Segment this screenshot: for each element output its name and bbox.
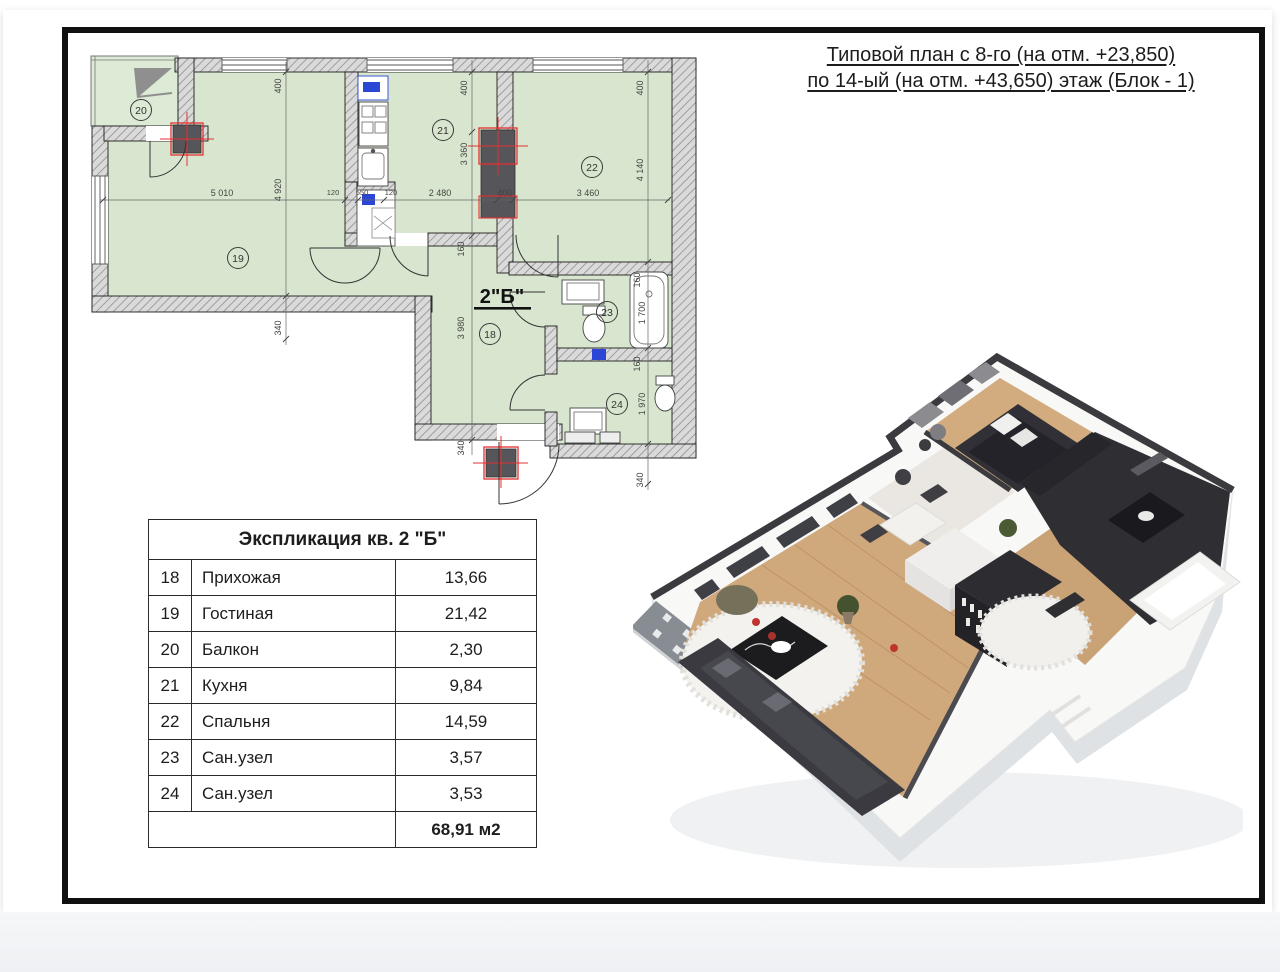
dim-label: 3 360	[459, 143, 469, 166]
room-area-cell: 14,59	[396, 704, 537, 740]
ventilation-shaft	[357, 190, 395, 246]
dim-label: 400	[459, 80, 469, 95]
table-row: 22 Спальня 14,59	[149, 704, 537, 740]
dim-label: 160	[632, 272, 642, 287]
room-area-cell: 9,84	[396, 668, 537, 704]
window-top-2	[367, 58, 453, 72]
room-name-cell: Сан.узел	[192, 776, 396, 812]
table-total-row: 68,91 м2	[149, 812, 537, 848]
svg-text:24: 24	[611, 399, 623, 411]
table-row: 21 Кухня 9,84	[149, 668, 537, 704]
svg-text:2"Б": 2"Б"	[480, 286, 524, 308]
table-row: 24 Сан.узел 3,53	[149, 776, 537, 812]
svg-text:23: 23	[601, 307, 613, 319]
svg-text:18: 18	[484, 329, 496, 341]
dim-label: 400	[497, 188, 512, 198]
bean-bag	[716, 585, 758, 615]
dim-label: 4 140	[635, 159, 645, 182]
dim-label: 160	[456, 241, 466, 256]
window-top-3	[533, 58, 623, 72]
table-row: 20 Балкон 2,30	[149, 632, 537, 668]
column-marker	[473, 436, 528, 488]
room-area-cell: 2,30	[396, 632, 537, 668]
dim-label: 1 700	[637, 302, 647, 325]
sink	[1138, 511, 1154, 521]
floor-plan-2d: 5 010 120 550 120 2 480 400 3 460 400 4 …	[58, 28, 710, 520]
drawing-title-line1: Типовой план с 8-го (на отм. +23,850)	[778, 42, 1224, 68]
room-number-cell: 23	[149, 740, 192, 776]
window-top-1	[222, 58, 287, 72]
room-name-cell: Прихожая	[192, 560, 396, 596]
dim-label: 120	[327, 188, 340, 197]
table-row: 23 Сан.узел 3,57	[149, 740, 537, 776]
room-name-cell: Кухня	[192, 668, 396, 704]
room-number-cell: 20	[149, 632, 192, 668]
dim-label: 550	[356, 188, 369, 197]
svg-text:22: 22	[586, 162, 598, 174]
dim-label: 120	[385, 188, 398, 197]
dim-label: 340	[456, 440, 466, 455]
dim-label: 340	[273, 320, 283, 335]
room-number-cell: 22	[149, 704, 192, 740]
shelf-icon	[565, 432, 595, 443]
room-area-cell: 3,53	[396, 776, 537, 812]
room-area-cell: 13,66	[396, 560, 537, 596]
total-area-cell: 68,91 м2	[396, 812, 537, 848]
window-left	[92, 176, 108, 264]
svg-text:21: 21	[437, 125, 449, 137]
table-row: 19 Гостиная 21,42	[149, 596, 537, 632]
room-number-cell: 24	[149, 776, 192, 812]
room-number-cell: 18	[149, 560, 192, 596]
svg-text:19: 19	[232, 253, 244, 265]
toy	[890, 644, 898, 652]
room-area-cell: 3,57	[396, 740, 537, 776]
render-3d-isometric	[633, 328, 1243, 868]
drawing-title: Типовой план с 8-го (на отм. +23,850) по…	[778, 42, 1224, 94]
table-title: Экспликация кв. 2 "Б"	[149, 520, 537, 560]
svg-text:20: 20	[135, 105, 147, 117]
bedroom-table	[930, 424, 946, 440]
table-header-row: Экспликация кв. 2 "Б"	[149, 520, 537, 560]
meter-icon	[592, 349, 606, 360]
washbasin-icon	[562, 280, 604, 304]
toy	[768, 632, 776, 640]
apartment-label: 2"Б"	[474, 286, 531, 310]
room-number-cell: 19	[149, 596, 192, 632]
dim-label: 4 920	[273, 179, 283, 202]
dim-label: 400	[635, 80, 645, 95]
toy	[752, 618, 760, 626]
kitchen-fixtures	[358, 76, 388, 186]
desk-chair	[895, 469, 911, 485]
page-bottom-strip	[0, 912, 1280, 972]
room-number-cell: 21	[149, 668, 192, 704]
room-area-cell: 21,42	[396, 596, 537, 632]
dim-label: 3 980	[456, 317, 466, 340]
dim-label: 5 010	[211, 188, 234, 198]
room-name-cell: Спальня	[192, 704, 396, 740]
total-empty-cell	[149, 812, 396, 848]
explication-table: Экспликация кв. 2 "Б" 18 Прихожая 13,66 …	[148, 519, 537, 848]
room-name-cell: Сан.узел	[192, 740, 396, 776]
table-row: 18 Прихожая 13,66	[149, 560, 537, 596]
room-name-cell: Балкон	[192, 632, 396, 668]
dim-label: 3 460	[577, 188, 600, 198]
dim-label: 400	[273, 78, 283, 93]
stove-icon	[359, 102, 388, 146]
kitchen-sink-icon	[358, 148, 388, 186]
plant	[999, 519, 1017, 537]
dim-label: 2 480	[429, 188, 452, 198]
washbasin-icon	[570, 408, 606, 434]
room-name-cell: Гостиная	[192, 596, 396, 632]
shelf-icon	[600, 432, 620, 443]
bedroom-chair	[919, 439, 931, 451]
drawing-title-line2: по 14-ый (на отм. +43,650) этаж (Блок - …	[778, 68, 1224, 94]
